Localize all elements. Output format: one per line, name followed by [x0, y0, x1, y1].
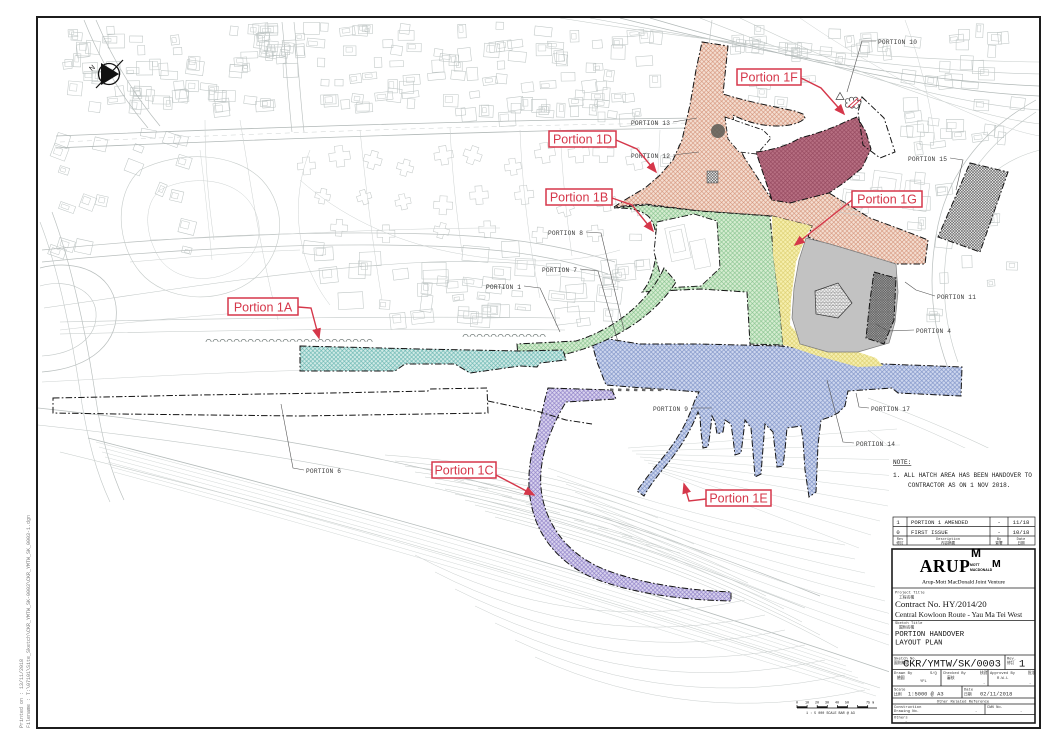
- svg-text:Checked By: Checked By: [943, 671, 967, 676]
- svg-text:Project Title: Project Title: [895, 591, 925, 596]
- svg-text:PORTION 4: PORTION 4: [916, 328, 951, 335]
- svg-text:PORTION 15: PORTION 15: [908, 156, 947, 163]
- svg-text:Arup-Mott MacDonald Joint Vent: Arup-Mott MacDonald Joint Venture: [922, 580, 1006, 586]
- svg-text:Portion 1B: Portion 1B: [550, 191, 608, 205]
- svg-text:CKR/YMTW/SK/0003: CKR/YMTW/SK/0003: [903, 659, 1001, 671]
- svg-text:1:5000 @ A3: 1:5000 @ A3: [908, 692, 944, 698]
- svg-text:40: 40: [835, 702, 839, 706]
- svg-text:PORTION HANDOVER: PORTION HANDOVER: [895, 631, 965, 639]
- svg-text:M: M: [971, 546, 981, 560]
- svg-text:YFL: YFL: [920, 680, 928, 684]
- svg-text:-: -: [1029, 682, 1031, 686]
- svg-text:Portion 1F: Portion 1F: [740, 71, 798, 85]
- svg-text:11/18: 11/18: [1013, 519, 1030, 526]
- svg-text:1. ALL HATCH AREA HAS BEEN HA: 1. ALL HATCH AREA HAS BEEN HANDOVER TO: [893, 472, 1032, 479]
- svg-text:75 m: 75 m: [866, 702, 874, 706]
- svg-text:1 : 5 000 SCALE BAR @ A3: 1 : 5 000 SCALE BAR @ A3: [806, 711, 855, 716]
- svg-text:PORTION 17: PORTION 17: [871, 406, 910, 413]
- svg-text:Central Kowloon Route - Yau Ma: Central Kowloon Route - Yau Ma Tei West: [895, 610, 1023, 619]
- svg-text:-: -: [997, 519, 1000, 526]
- svg-text:Contract No. HY/2014/20: Contract No. HY/2014/20: [895, 599, 987, 609]
- svg-text:Drawn By: Drawn By: [894, 671, 913, 676]
- svg-text:0: 0: [796, 702, 798, 706]
- svg-text:PORTION 8: PORTION 8: [548, 230, 583, 237]
- svg-text:R.W.L: R.W.L: [997, 677, 1009, 681]
- svg-text:CWN No.: CWN No.: [987, 706, 1003, 710]
- svg-text:PORTION 10: PORTION 10: [878, 39, 917, 46]
- svg-text:50: 50: [845, 702, 849, 706]
- svg-text:Scale: Scale: [894, 688, 906, 693]
- svg-text:S/Q: S/Q: [930, 671, 938, 676]
- svg-text:-: -: [1020, 710, 1022, 714]
- svg-text:Sketch Title: Sketch Title: [895, 621, 923, 626]
- svg-text:PORTION 14: PORTION 14: [856, 441, 895, 448]
- svg-text:Drawing No.: Drawing No.: [894, 709, 919, 714]
- svg-text:Filename : T:\07101\Site_Sket: Filename : T:\07101\Site_Sketch\CKR_YMTW…: [26, 515, 32, 728]
- svg-text:-: -: [997, 529, 1000, 536]
- svg-text:M: M: [992, 558, 1001, 570]
- svg-text:30: 30: [825, 702, 829, 706]
- svg-text:Printed on : 13/11/2018: Printed on : 13/11/2018: [19, 659, 25, 728]
- svg-text:NOTE:: NOTE:: [893, 459, 911, 466]
- svg-text:MOTT: MOTT: [970, 563, 981, 567]
- svg-text:02/11/2018: 02/11/2018: [980, 692, 1012, 698]
- svg-text:-: -: [983, 682, 985, 686]
- svg-text:FIRST ISSUE: FIRST ISSUE: [911, 529, 949, 536]
- svg-text:-: -: [975, 710, 977, 714]
- svg-text:10: 10: [805, 702, 809, 706]
- svg-text:Rev.: Rev.: [1007, 658, 1016, 662]
- svg-text:Date: Date: [964, 689, 974, 693]
- svg-text:PORTION 12: PORTION 12: [631, 153, 670, 160]
- svg-text:MACDONALD: MACDONALD: [970, 568, 993, 572]
- svg-text:PORTION 1 AMENDED: PORTION 1 AMENDED: [911, 519, 969, 526]
- svg-text:Approved By: Approved By: [990, 671, 1016, 676]
- svg-text:Portion 1E: Portion 1E: [709, 492, 767, 506]
- svg-text:-: -: [905, 720, 907, 724]
- svg-text:20: 20: [815, 702, 819, 706]
- svg-text:1: 1: [1019, 659, 1025, 671]
- svg-text:PORTION 13: PORTION 13: [631, 120, 670, 127]
- svg-text:PORTION 11: PORTION 11: [937, 294, 976, 301]
- svg-text:PORTION 1: PORTION 1: [486, 284, 521, 291]
- svg-text:Portion 1D: Portion 1D: [553, 133, 612, 147]
- svg-text:CONTRACTOR AS ON 1 NOV 2018.: CONTRACTOR AS ON 1 NOV 2018.: [908, 482, 1010, 489]
- svg-text:Portion 1A: Portion 1A: [234, 301, 293, 315]
- svg-text:LAYOUT PLAN: LAYOUT PLAN: [895, 640, 942, 648]
- svg-text:PORTION 6: PORTION 6: [306, 468, 341, 475]
- svg-text:Portion 1G: Portion 1G: [857, 193, 917, 207]
- svg-text:10/18: 10/18: [1013, 529, 1030, 536]
- svg-text:Portion 1C: Portion 1C: [434, 464, 493, 478]
- svg-text:PORTION 9: PORTION 9: [653, 406, 688, 413]
- svg-text:PORTION 7: PORTION 7: [542, 267, 577, 274]
- svg-text:ARUP: ARUP: [920, 556, 971, 576]
